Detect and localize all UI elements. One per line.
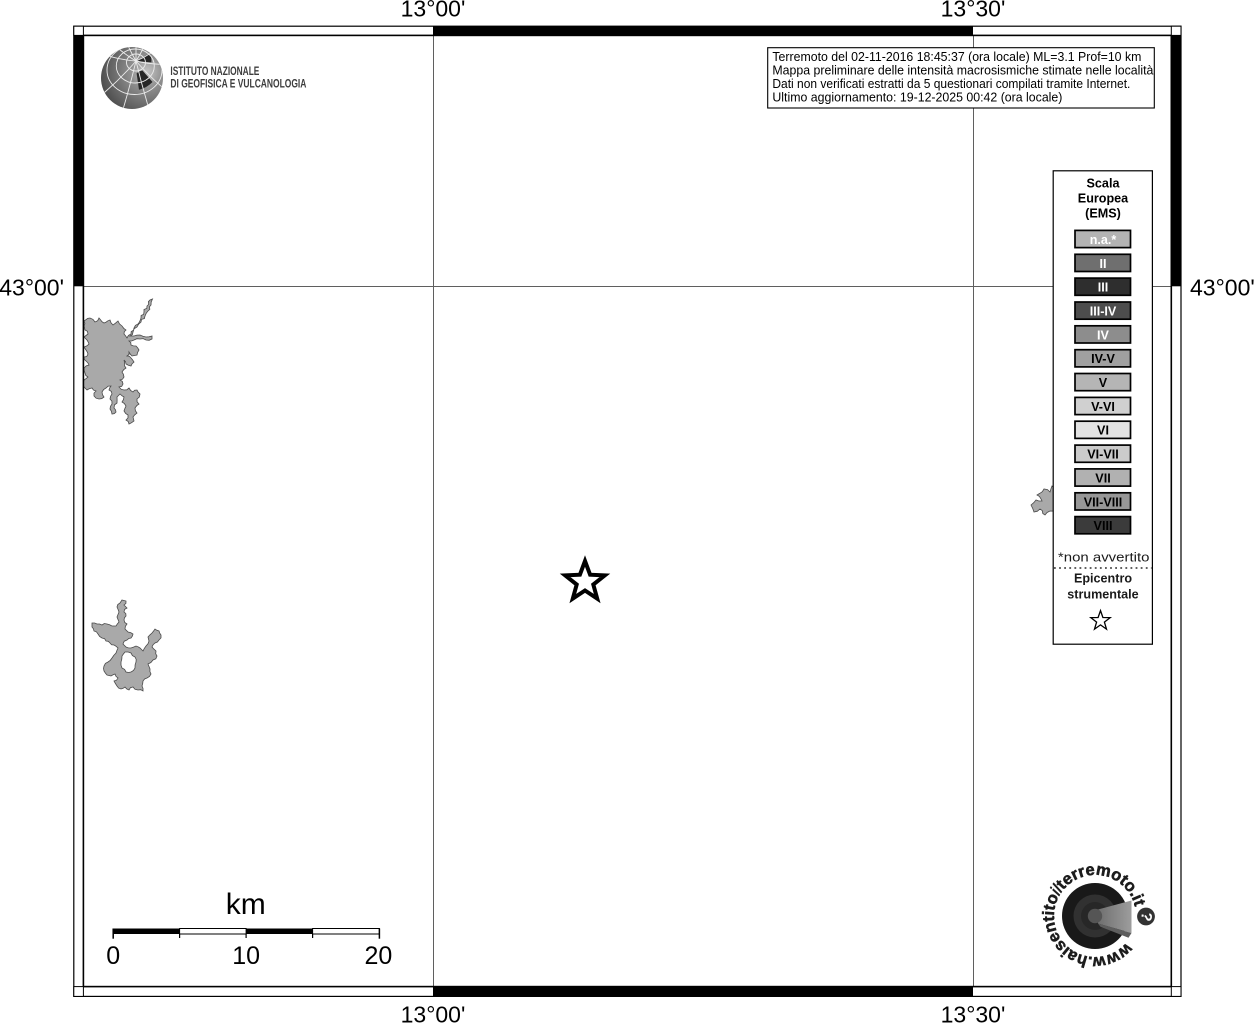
svg-text:43°00': 43°00' (1190, 275, 1255, 301)
svg-text:VI: VI (1097, 424, 1109, 438)
svg-text:V-VI: V-VI (1091, 400, 1115, 414)
svg-text:V: V (1099, 376, 1108, 390)
svg-text:(EMS): (EMS) (1085, 207, 1121, 221)
svg-text:13°30': 13°30' (941, 0, 1006, 22)
svg-text:43°00': 43°00' (0, 275, 64, 301)
svg-text:Epicentro: Epicentro (1074, 571, 1132, 585)
svg-text:20: 20 (364, 942, 392, 970)
svg-text:*non avvertito: *non avvertito (1058, 550, 1150, 565)
svg-text:VIII: VIII (1094, 519, 1113, 533)
svg-text:Europea: Europea (1078, 192, 1129, 206)
svg-text:VII-VIII: VII-VIII (1084, 495, 1123, 509)
svg-text:VII: VII (1095, 471, 1110, 485)
svg-text:Scala: Scala (1087, 177, 1121, 191)
svg-text:III: III (1098, 281, 1109, 295)
svg-text:IV-V: IV-V (1091, 352, 1115, 366)
svg-text:n.a.*: n.a.* (1090, 233, 1117, 247)
svg-text:strumentale: strumentale (1067, 587, 1138, 601)
svg-text:III-IV: III-IV (1090, 305, 1117, 319)
svg-text:IV: IV (1097, 328, 1109, 342)
svg-text:13°00': 13°00' (401, 1002, 466, 1024)
svg-text:VI-VII: VI-VII (1087, 448, 1119, 462)
svg-text:0: 0 (106, 942, 120, 970)
svg-text:II: II (1100, 257, 1107, 271)
svg-text:13°30': 13°30' (941, 1002, 1006, 1024)
svg-text:DI GEOFISICA E VULCANOLOGIA: DI GEOFISICA E VULCANOLOGIA (170, 77, 306, 91)
svg-text:10: 10 (232, 942, 260, 970)
svg-text:Ultimo aggiornamento: 19-12-20: Ultimo aggiornamento: 19-12-2025 00:42 (… (772, 89, 1062, 104)
svg-text:km: km (226, 888, 266, 921)
svg-text:13°00': 13°00' (401, 0, 466, 22)
